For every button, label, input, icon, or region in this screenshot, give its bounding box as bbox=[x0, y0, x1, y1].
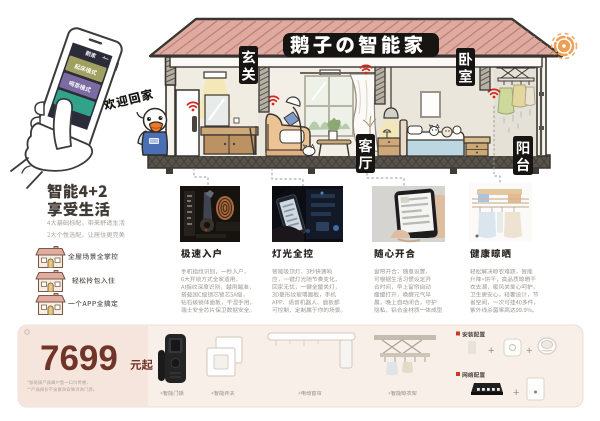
svg-text:7699: 7699 bbox=[40, 339, 118, 378]
svg-text:+: + bbox=[488, 345, 494, 357]
svg-text:+: + bbox=[513, 387, 519, 399]
svg-text:+: + bbox=[526, 345, 532, 357]
